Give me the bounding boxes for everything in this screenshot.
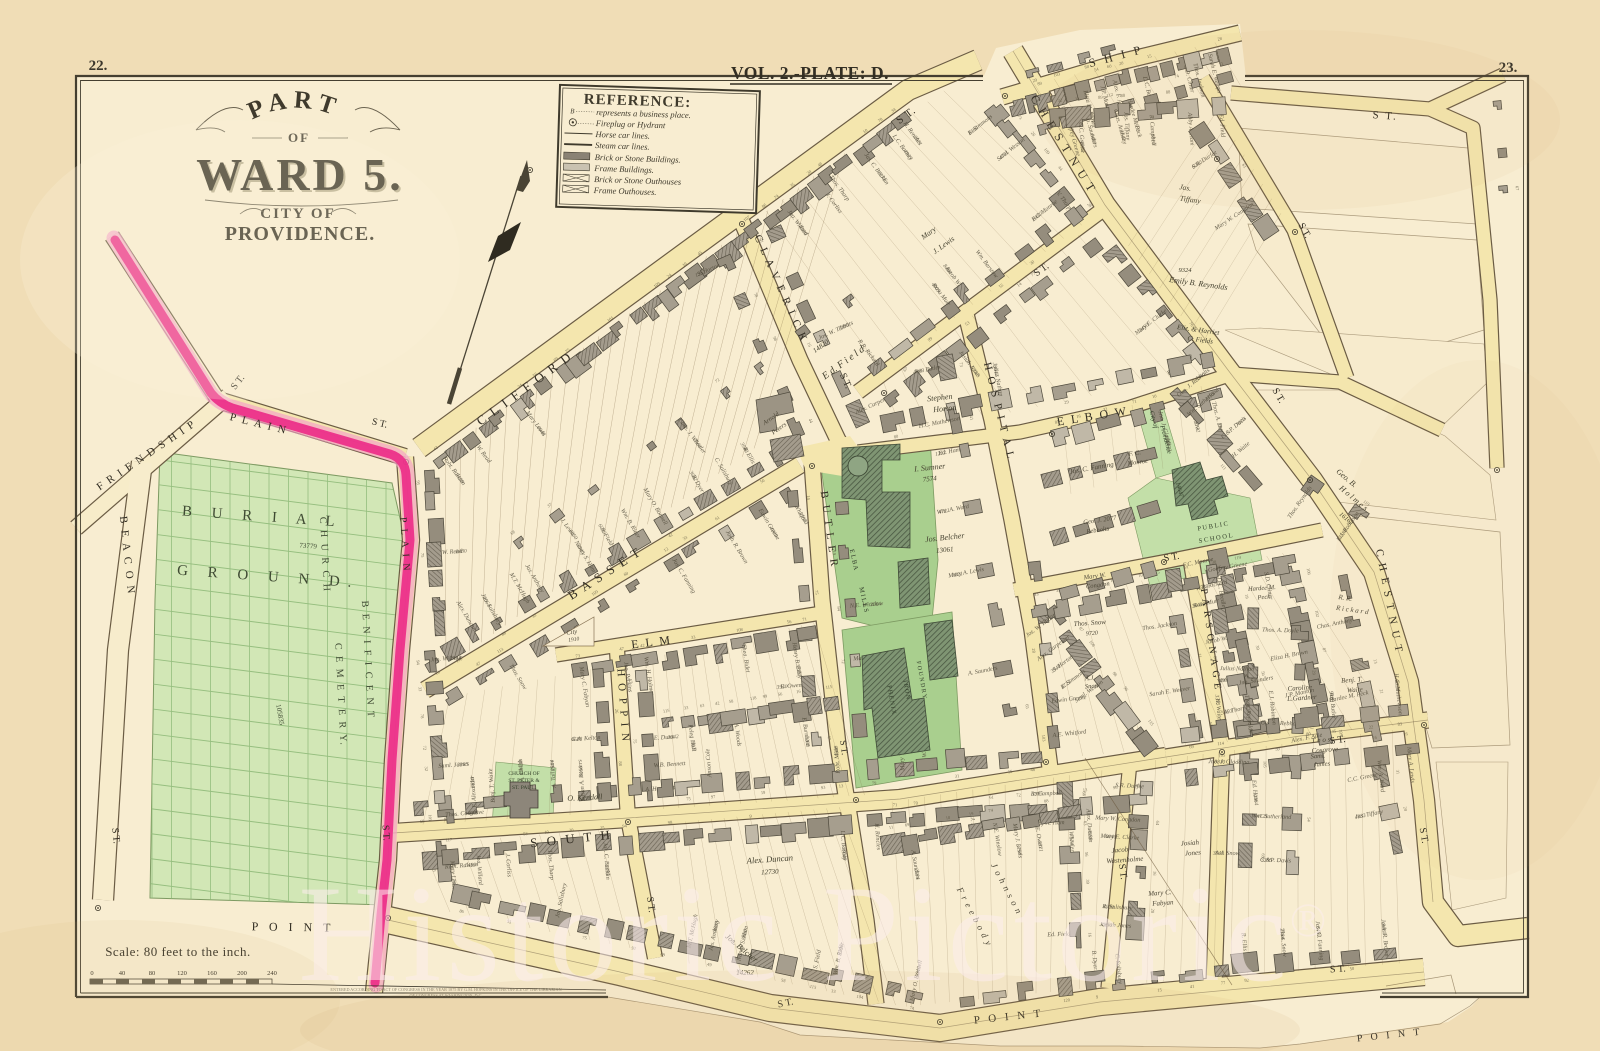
svg-text:S T.: S T.	[379, 825, 391, 841]
svg-text:Jacob: Jacob	[1111, 845, 1129, 854]
svg-text:4721: 4721	[1257, 813, 1268, 820]
svg-text:S T.: S T.	[1330, 963, 1346, 975]
svg-text:A.J.: A.J.	[1084, 675, 1096, 683]
svg-text:S T.: S T.	[837, 740, 849, 756]
svg-text:ST. PAUL.: ST. PAUL.	[512, 785, 537, 791]
svg-text:7574: 7574	[1067, 834, 1075, 846]
svg-text:James: James	[1314, 760, 1331, 768]
svg-text:5732: 5732	[1244, 699, 1251, 711]
svg-text:Frame Buildings.: Frame Buildings.	[593, 163, 654, 175]
svg-text:9420: 9420	[1328, 691, 1336, 703]
svg-text:Julius Nathan: Julius Nathan	[1220, 665, 1255, 673]
svg-text:8810: 8810	[1214, 759, 1225, 765]
svg-text:Josiah: Josiah	[1180, 838, 1199, 847]
svg-text:ST. PETER &: ST. PETER &	[508, 778, 540, 784]
svg-text:CHURCH OF: CHURCH OF	[508, 771, 539, 777]
svg-text:71: 71	[802, 616, 807, 622]
svg-text:O. Kendall: O. Kendall	[567, 792, 603, 803]
svg-text:72: 72	[841, 659, 846, 664]
svg-text:6040: 6040	[1105, 833, 1117, 841]
svg-text:3940: 3940	[775, 683, 788, 691]
svg-text:2564: 2564	[450, 654, 462, 662]
svg-text:8810: 8810	[470, 777, 477, 789]
svg-text:Horse car lines.: Horse car lines.	[594, 129, 650, 141]
svg-text:4588: 4588	[571, 735, 583, 743]
svg-text:Peck: Peck	[1256, 594, 1270, 602]
svg-text:S T.: S T.	[1329, 734, 1346, 747]
svg-text:31: 31	[955, 773, 960, 778]
svg-text:3395: 3395	[456, 762, 469, 769]
svg-text:32: 32	[424, 766, 429, 771]
svg-text:8480: 8480	[1380, 923, 1388, 935]
svg-text:71: 71	[893, 802, 898, 807]
svg-text:2564: 2564	[1252, 794, 1260, 806]
svg-text:Historic Pictoric: Historic Pictoric	[298, 857, 1291, 1010]
svg-text:73779: 73779	[299, 541, 318, 550]
svg-text:Snow: Snow	[1085, 682, 1100, 690]
svg-text:9324: 9324	[1179, 267, 1193, 274]
svg-text:3021: 3021	[467, 810, 480, 817]
svg-text:51: 51	[1184, 564, 1189, 570]
svg-text:Thos. A. Doyle: Thos. A. Doyle	[1262, 626, 1299, 634]
svg-text:3395: 3395	[1031, 791, 1043, 797]
svg-text:42: 42	[715, 700, 720, 706]
svg-text:11: 11	[1197, 653, 1203, 658]
svg-text:105: 105	[1263, 761, 1268, 769]
svg-text:4588: 4588	[1086, 829, 1094, 841]
svg-text:22.: 22.	[89, 58, 108, 74]
svg-text:101: 101	[427, 814, 433, 821]
svg-text:72: 72	[1016, 792, 1021, 797]
svg-text:7574: 7574	[922, 474, 937, 483]
svg-text:VOL. 2.-PLATE: D.: VOL. 2.-PLATE: D.	[731, 63, 889, 83]
svg-text:Saml.: Saml.	[1310, 752, 1325, 760]
svg-text:Steam car lines.: Steam car lines.	[595, 140, 650, 152]
svg-text:3642: 3642	[666, 733, 679, 741]
svg-text:72: 72	[422, 745, 427, 750]
svg-text:11: 11	[888, 824, 893, 830]
svg-text:9720: 9720	[1086, 631, 1098, 638]
svg-text:3940: 3940	[1212, 850, 1224, 857]
svg-text:2564: 2564	[870, 600, 882, 608]
svg-text:S T.: S T.	[109, 827, 122, 844]
svg-text:61: 61	[989, 794, 994, 799]
svg-text:41: 41	[969, 415, 975, 420]
svg-text:®: ®	[1290, 894, 1326, 947]
svg-text:4150: 4150	[577, 765, 585, 777]
svg-text:8480: 8480	[456, 548, 468, 556]
svg-text:117: 117	[445, 837, 453, 843]
svg-text:Frame Outhouses.: Frame Outhouses.	[593, 185, 657, 197]
svg-text:2564: 2564	[549, 759, 557, 771]
